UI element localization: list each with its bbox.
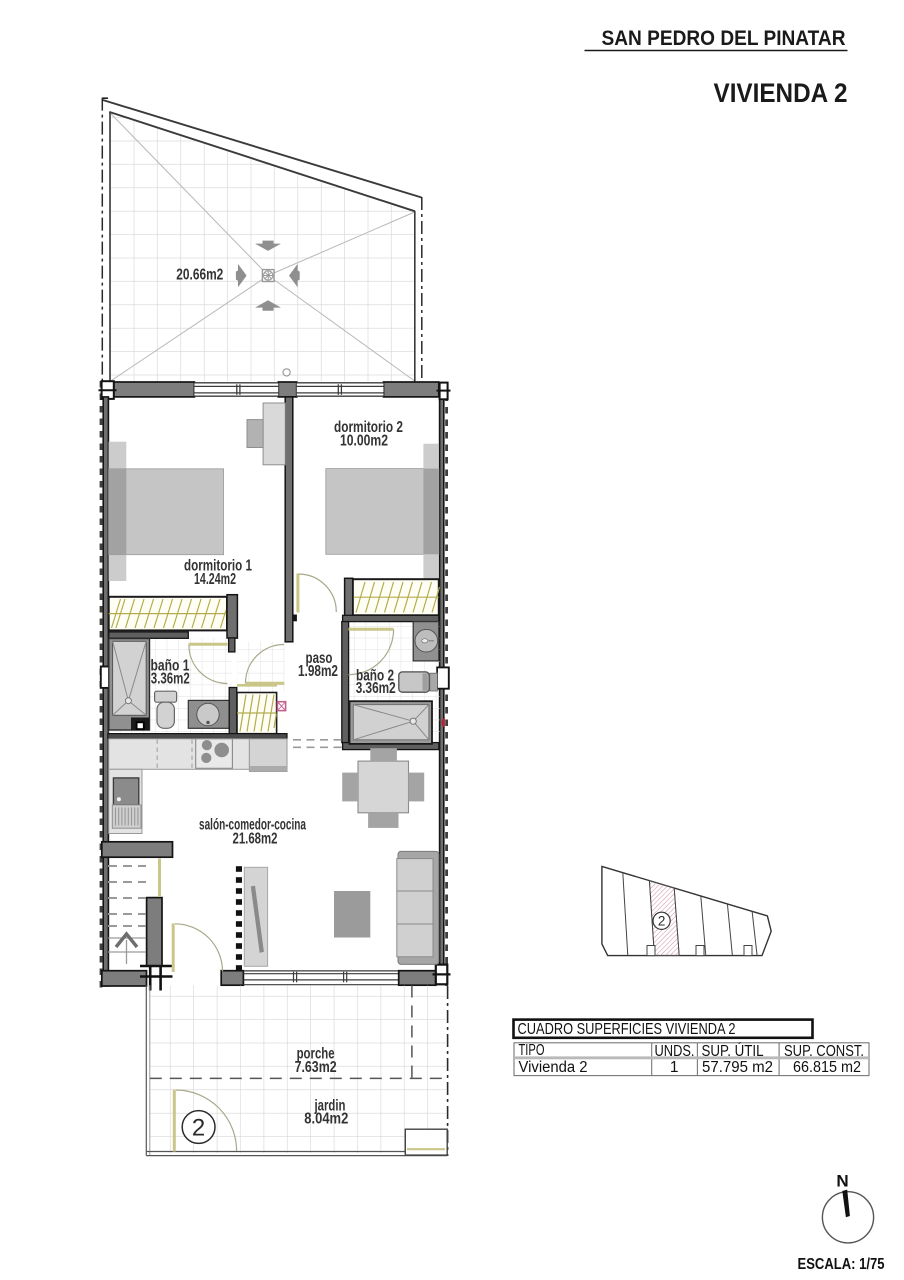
svg-text:57.795 m2: 57.795 m2 [702, 1059, 773, 1076]
svg-text:2: 2 [192, 1114, 205, 1141]
svg-text:1: 1 [670, 1059, 679, 1076]
svg-text:UNDS.: UNDS. [655, 1043, 695, 1060]
svg-text:SUP. ÚTIL: SUP. ÚTIL [702, 1043, 764, 1060]
svg-text:SAN PEDRO DEL PINATAR: SAN PEDRO DEL PINATAR [602, 26, 846, 50]
svg-text:1.98m2: 1.98m2 [298, 663, 338, 680]
svg-text:VIVIENDA 2: VIVIENDA 2 [714, 78, 848, 108]
svg-text:20.66m2: 20.66m2 [176, 267, 223, 284]
svg-text:SUP. CONST.: SUP. CONST. [784, 1043, 864, 1060]
svg-text:7.63m2: 7.63m2 [295, 1059, 337, 1076]
svg-text:14.24m2: 14.24m2 [194, 571, 236, 588]
svg-text:ESCALA: 1/75: ESCALA: 1/75 [798, 1256, 885, 1273]
svg-text:Vivienda 2: Vivienda 2 [519, 1059, 588, 1076]
svg-text:3.36m2: 3.36m2 [151, 670, 190, 687]
svg-text:TIPO: TIPO [519, 1042, 545, 1059]
svg-text:2: 2 [658, 914, 666, 929]
svg-text:8.04m2: 8.04m2 [304, 1111, 348, 1128]
svg-text:N: N [836, 1172, 848, 1191]
svg-text:3.36m2: 3.36m2 [356, 680, 396, 697]
svg-text:66.815 m2: 66.815 m2 [793, 1059, 861, 1076]
svg-text:21.68m2: 21.68m2 [233, 830, 278, 847]
svg-text:CUADRO SUPERFICIES VIVIENDA 2: CUADRO SUPERFICIES VIVIENDA 2 [518, 1021, 736, 1038]
svg-text:10.00m2: 10.00m2 [340, 433, 388, 450]
